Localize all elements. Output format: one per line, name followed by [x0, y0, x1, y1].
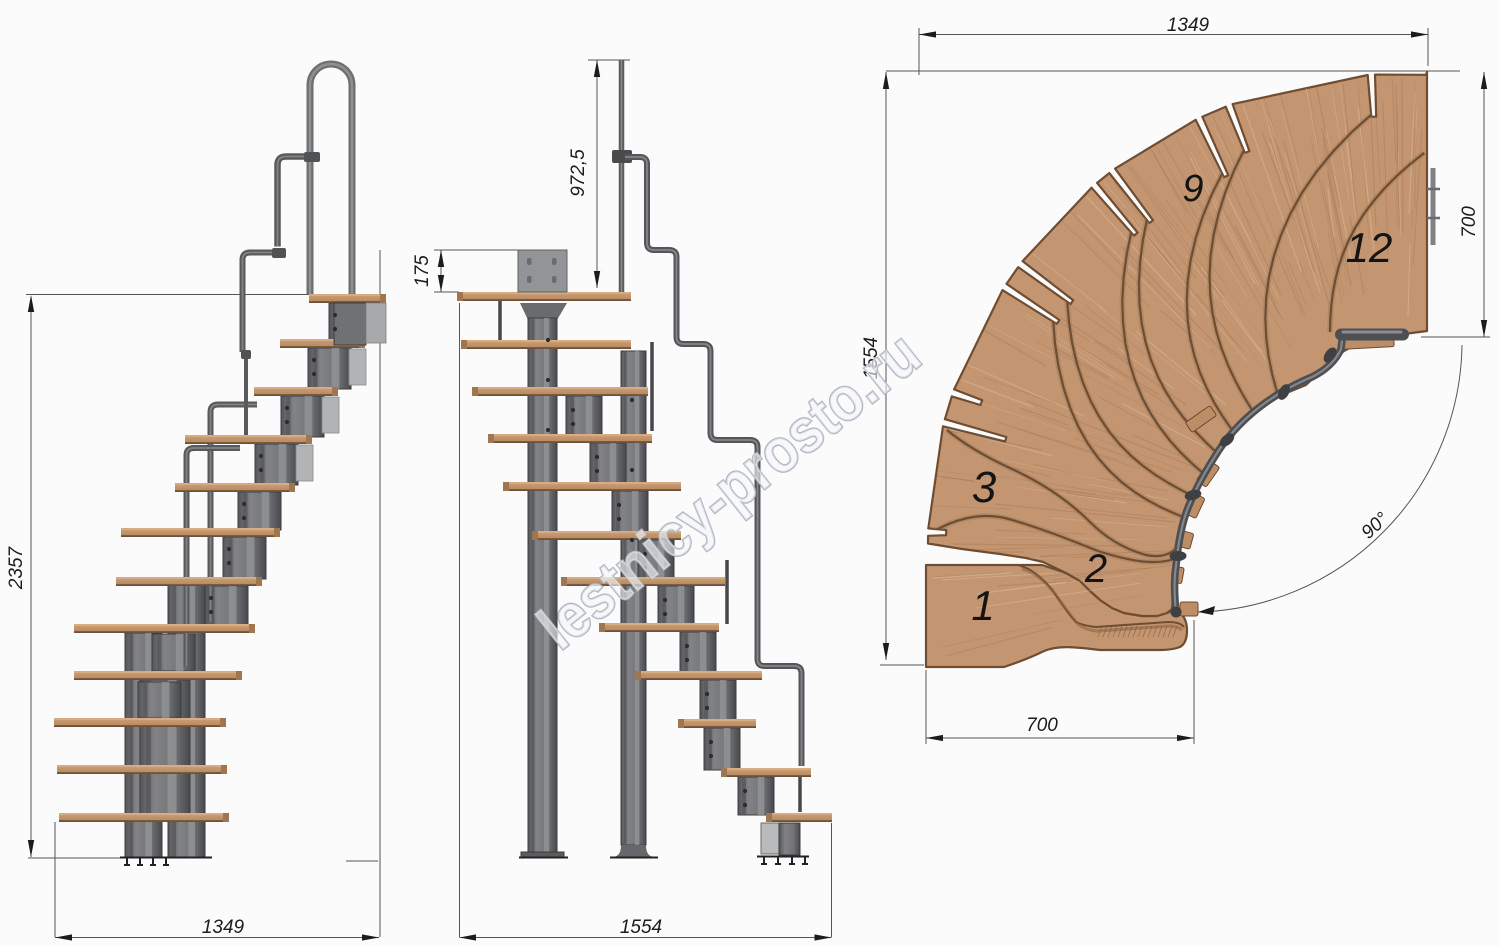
svg-text:1349: 1349 [1167, 15, 1210, 36]
svg-text:12: 12 [1346, 224, 1393, 271]
svg-text:700: 700 [1459, 206, 1480, 238]
svg-text:9: 9 [1182, 168, 1203, 210]
svg-text:2: 2 [1084, 547, 1107, 591]
svg-text:2357: 2357 [6, 545, 27, 590]
svg-text:1554: 1554 [620, 917, 662, 938]
svg-text:3: 3 [972, 463, 997, 512]
svg-text:175: 175 [412, 255, 433, 287]
svg-text:1349: 1349 [202, 917, 245, 938]
svg-text:972,5: 972,5 [568, 149, 589, 197]
svg-text:1: 1 [971, 582, 994, 629]
svg-text:700: 700 [1026, 715, 1058, 736]
